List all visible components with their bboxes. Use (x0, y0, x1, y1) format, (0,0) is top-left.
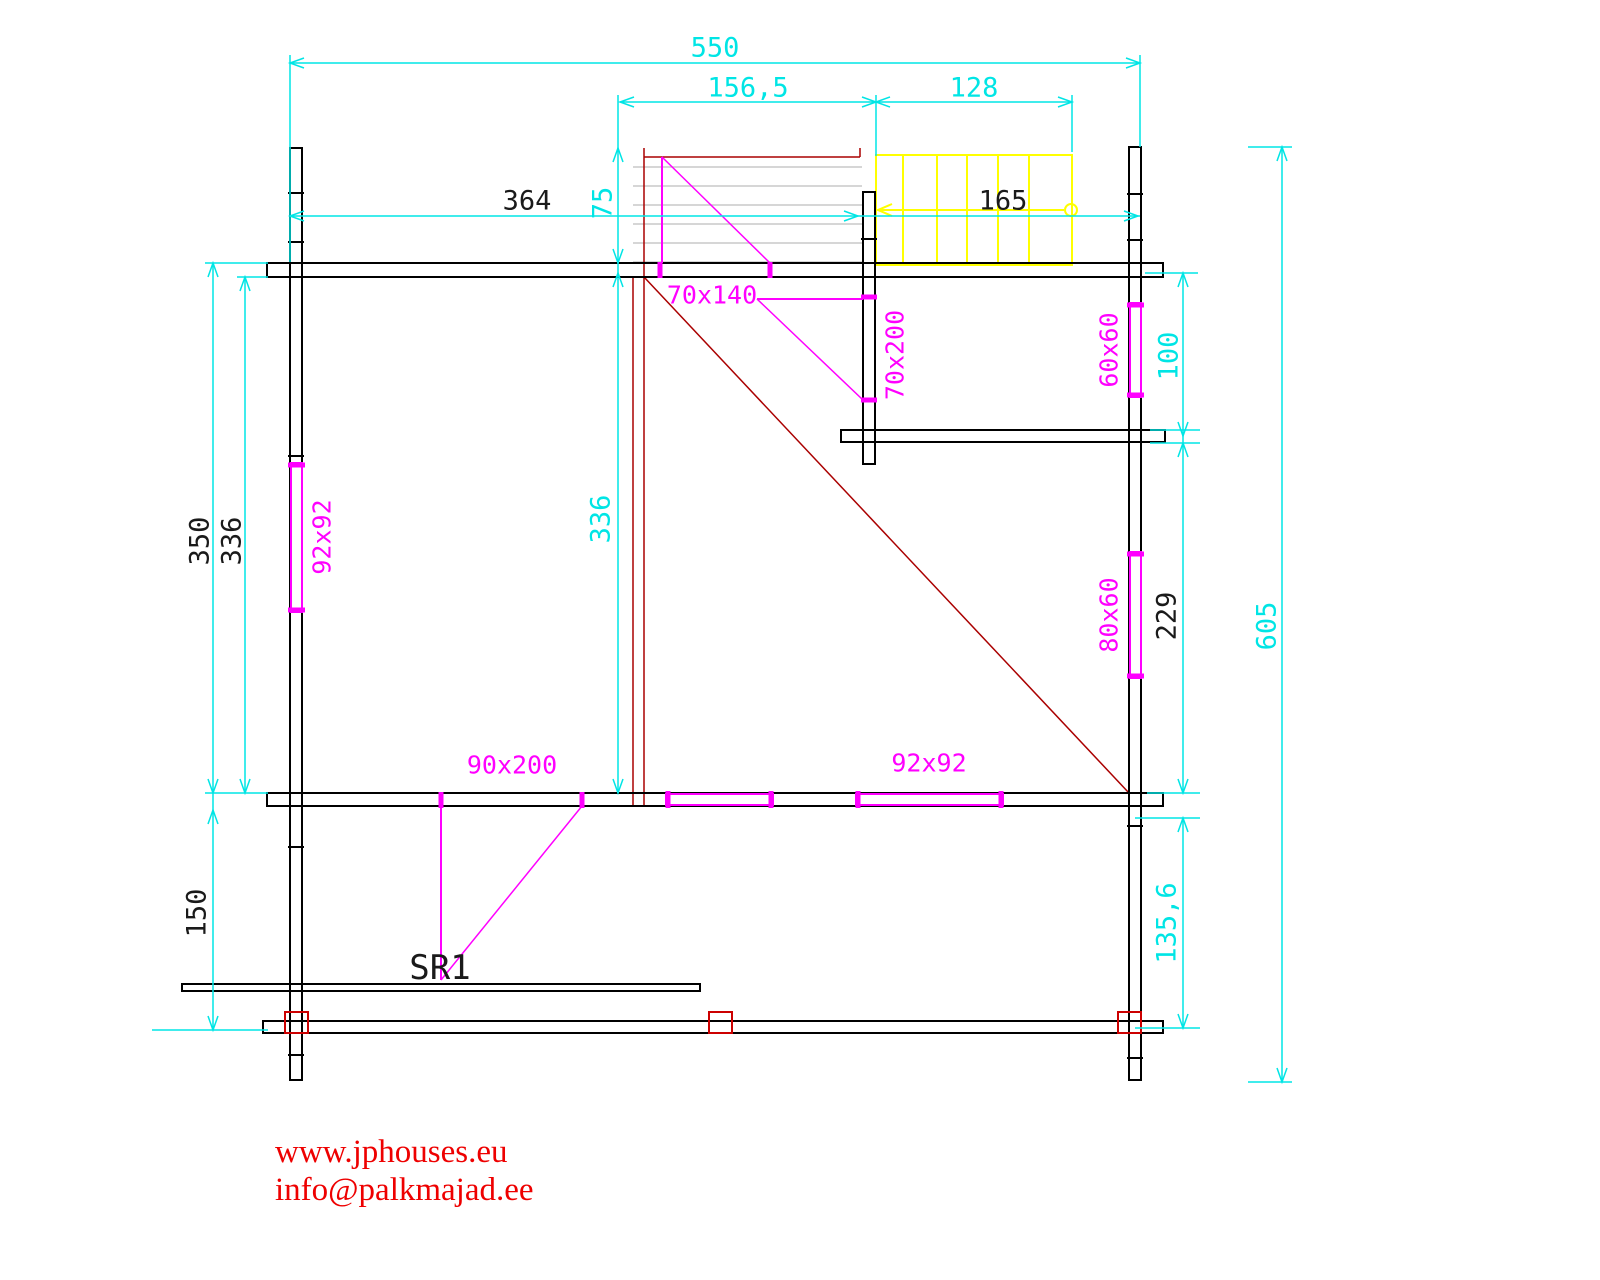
dim-right-mid: 229 (1152, 592, 1183, 641)
dim-left-inner-depth: 336 (217, 517, 248, 566)
dim-stair-length: 165 (979, 186, 1028, 217)
staircase (876, 155, 1077, 265)
dim-right-lower: 135,6 (1152, 882, 1183, 963)
log-notches (288, 193, 1143, 1058)
bottom-window-92x92 (856, 794, 1003, 805)
terrace-front-wall (263, 1021, 1163, 1033)
dim-stair-width: 128 (950, 73, 999, 104)
footer: www.jphouses.eu info@palkmajad.ee (275, 1134, 534, 1208)
dim-landing-depth: 75 (588, 187, 619, 220)
bathroom-wall-vertical (863, 192, 875, 464)
opening-labels: 70x140 70x200 60x60 80x60 92x92 90x200 9… (308, 281, 1124, 780)
construction-lines (633, 148, 1129, 806)
label-bottom-window: 92x92 (891, 749, 966, 778)
dim-overall-width: 550 (691, 33, 740, 64)
dim-terrace-depth: 150 (182, 889, 213, 938)
floor-plan-page: 550 156,5 128 364 75 165 350 336 336 100… (0, 0, 1600, 1280)
bottom-window-small (666, 794, 773, 805)
terrace-posts (285, 1012, 1141, 1033)
left-exterior-wall (290, 148, 302, 1080)
footer-email: info@palkmajad.ee (275, 1172, 534, 1208)
floor-plan-drawing: 550 156,5 128 364 75 165 350 336 336 100… (0, 0, 1600, 1280)
dim-wall-to-stair: 364 (503, 186, 552, 217)
bathroom-wall-horizontal (841, 430, 1165, 442)
label-main-door: 90x200 (467, 751, 557, 780)
dim-mid-inner-depth: 336 (586, 495, 617, 544)
plan-name: SR1 (409, 948, 470, 988)
label-right-upper-window: 60x60 (1095, 312, 1124, 387)
dim-left-outer-depth: 350 (185, 517, 216, 566)
dimension-labels: 550 156,5 128 364 75 165 350 336 336 100… (182, 33, 1283, 964)
label-left-window: 92x92 (308, 499, 337, 574)
dim-right-upper: 100 (1154, 332, 1185, 381)
label-right-lower-window: 80x60 (1095, 577, 1124, 652)
loft-floor-lines (633, 167, 862, 262)
label-loft-door: 70x140 (667, 281, 757, 310)
right-lower-window (1130, 552, 1141, 678)
dim-landing-width: 156,5 (707, 73, 788, 104)
left-window (291, 463, 302, 612)
right-upper-window (1130, 303, 1141, 397)
terrace-post (709, 1012, 732, 1033)
dim-overall-depth: 605 (1252, 602, 1283, 651)
dimension-arrows (208, 58, 1287, 1082)
loft-door (660, 157, 770, 278)
label-bath-door: 70x200 (881, 310, 910, 400)
terrace-post (285, 1012, 308, 1033)
footer-website: www.jphouses.eu (275, 1134, 508, 1170)
bathroom-door (757, 297, 877, 400)
